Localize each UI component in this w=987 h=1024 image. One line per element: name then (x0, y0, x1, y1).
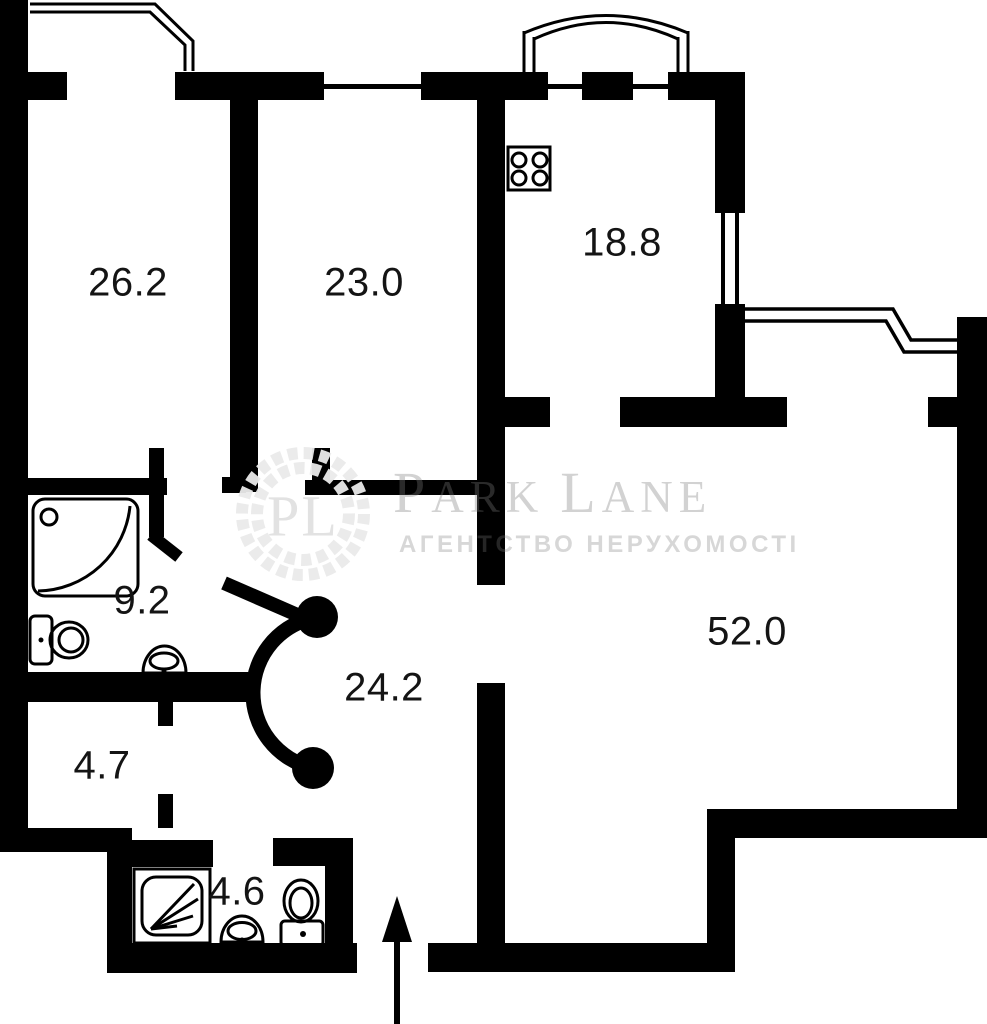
wall-segment (28, 672, 260, 702)
wall-segment (0, 828, 107, 852)
room-label-9-2: 9.2 (113, 579, 170, 624)
room-label-4-6: 4.6 (208, 870, 265, 915)
brand-part: ARK (431, 472, 544, 522)
brand-part: ANE (602, 472, 712, 522)
wall-segment (0, 0, 28, 852)
wall-segment (582, 72, 633, 100)
room-label-4-7: 4.7 (73, 744, 130, 789)
room-label-18-8: 18.8 (582, 221, 662, 266)
wall-segment (158, 702, 173, 726)
bay-window-outline (30, 4, 193, 71)
wall-segment (707, 809, 987, 838)
toilet-icon-2 (281, 880, 323, 946)
watermark-monogram: PL (267, 483, 339, 550)
wall-segment (158, 794, 173, 828)
brand-part: L (560, 460, 601, 525)
window-kitchen-side (715, 213, 745, 304)
wall-segment (715, 72, 745, 215)
balcony-door-opening-left (548, 74, 582, 98)
wall-segment (428, 943, 735, 972)
wall-segment (620, 397, 787, 427)
balcony-railing (745, 309, 958, 352)
balcony-door-opening-right (633, 74, 668, 98)
wall-segment (928, 397, 957, 427)
wall-segment (149, 495, 164, 537)
entrance-arrow-icon (382, 896, 412, 1024)
wall-segment (230, 100, 258, 492)
room-label-52-0: 52.0 (707, 610, 787, 655)
shower-cabin-icon (134, 869, 210, 943)
window-room-23 (324, 74, 421, 98)
wall-segment (149, 448, 164, 478)
wall-segment (175, 72, 324, 100)
brand-part: P (393, 460, 431, 525)
wall-segment (421, 72, 548, 100)
wall-segment (28, 478, 167, 495)
wall-segment (325, 838, 353, 973)
room-label-23-0: 23.0 (324, 261, 404, 306)
room-label-24-2: 24.2 (344, 666, 424, 711)
room-label-26-2: 26.2 (88, 261, 168, 306)
watermark-tagline: АГЕНТСТВО НЕРУХОМОСТІ (399, 531, 800, 559)
wall-segment (957, 317, 987, 838)
wall-segment (0, 72, 67, 100)
wall-segment (107, 840, 213, 867)
wall-segment (477, 397, 550, 427)
door-leaf-bathroom (151, 535, 179, 557)
wall-segment (477, 683, 505, 943)
toilet-icon (30, 616, 88, 664)
floor-plan: PL PARKLANE АГЕНТСТВО НЕРУХОМОСТІ 26.2 2… (0, 0, 987, 1024)
wall-segment (107, 943, 357, 973)
stove-icon (508, 147, 550, 190)
balcony-arch (524, 16, 688, 73)
sink-icon-2 (221, 916, 263, 943)
sink-icon (143, 646, 186, 674)
watermark-brand: PARKLANE (393, 464, 712, 522)
